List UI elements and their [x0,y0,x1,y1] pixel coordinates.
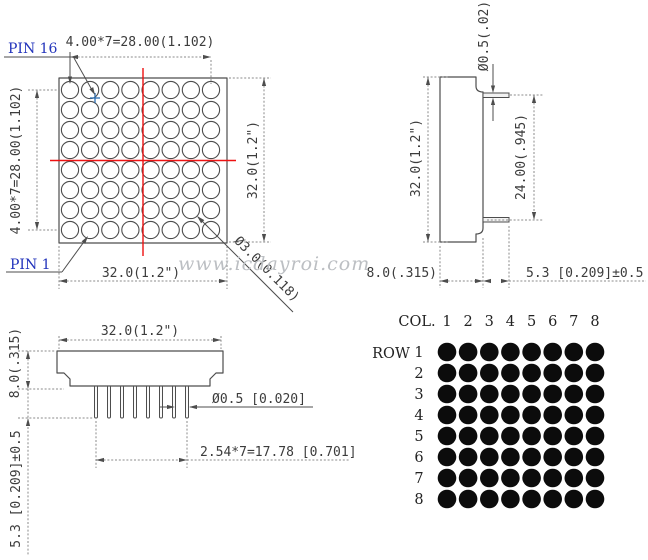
lead-pin [186,386,189,418]
dim-front-height: 32.0(1.2") [246,121,261,199]
led-dot-outline [102,221,119,238]
led-dot-outline [182,101,199,118]
matrix-dot [501,427,520,446]
led-dot-outline [142,221,159,238]
matrix-dot [438,406,457,425]
led-dot-outline [102,101,119,118]
dim-lead-pitch: 2.54*7=17.78 [0.701] [200,445,357,460]
matrix-dot [438,469,457,488]
led-dot-outline [61,201,78,218]
led-dot-outline [122,201,139,218]
dim-row-pitch: 4.00*7=28.00(1.102) [9,86,24,235]
led-dot-outline [142,81,159,98]
row-number: 7 [414,471,423,487]
matrix-dot [438,490,457,509]
led-dot-outline [202,181,219,198]
led-dot-outline [202,121,219,138]
led-dot-outline [82,101,99,118]
led-dot-outline [202,201,219,218]
row-header-label: ROW [372,346,410,362]
matrix-dot [459,490,478,509]
led-dot-outline [142,161,159,178]
matrix-dot [522,364,541,383]
col-number: 4 [506,314,515,330]
led-dot-outline [142,121,159,138]
led-dot-outline [82,181,99,198]
row-number-labels: 12345678 [414,345,423,508]
led-dot-outline [102,141,119,158]
bottom-body-outline [57,351,223,386]
led-dot-outline [162,121,179,138]
led-dot-outline [182,81,199,98]
matrix-dot [586,427,605,446]
bottom-lead-pins [95,386,189,418]
dim-bottom-width: 32.0(1.2") [101,324,179,339]
col-header-label: COL. [398,314,435,330]
matrix-dot [501,448,520,467]
dim-col-pitch: 4.00*7=28.00(1.102) [66,35,215,50]
matrix-dot [480,490,499,509]
matrix-dot [586,406,605,425]
matrix-dot [543,385,562,404]
dim-lead-thickness: Ø0.5(.02) [477,1,492,71]
matrix-dot [501,490,520,509]
matrix-dot [522,385,541,404]
matrix-dot [522,427,541,446]
led-dot-outline [162,81,179,98]
matrix-dot [501,364,520,383]
row-number: 1 [414,345,423,361]
matrix-dot [459,343,478,362]
matrix-diagram: COL. ROW 12345678 12345678 [372,314,604,508]
lead-pin [95,386,98,418]
led-dot-outline [162,101,179,118]
led-dot-outline [202,141,219,158]
led-dot-outline [61,141,78,158]
matrix-dot [501,406,520,425]
matrix-dot [565,469,584,488]
matrix-dot [522,469,541,488]
led-matrix-datasheet-drawing: PIN 16 PIN 1 4.00*7=28.00(1.102) 4.00*7=… [0,0,648,560]
matrix-dot [543,490,562,509]
pin16-label: PIN 16 [8,41,58,57]
led-dot-outline [142,201,159,218]
led-dot-outline [61,121,78,138]
matrix-dot [565,406,584,425]
matrix-dot [438,343,457,362]
col-number: 5 [527,314,536,330]
matrix-dot [565,490,584,509]
matrix-dot [565,448,584,467]
led-dot-outline [61,101,78,118]
led-dot-outline [202,161,219,178]
dim-bottom-lead-diameter: Ø0.5 [0.020] [212,392,306,407]
led-dot-outline [102,181,119,198]
matrix-dot [586,364,605,383]
led-dot-outline [102,121,119,138]
lead-pin [173,386,176,418]
matrix-dot [543,343,562,362]
matrix-dot [480,343,499,362]
led-dot-outline [61,221,78,238]
matrix-dot [522,343,541,362]
led-dot-outline [82,141,99,158]
matrix-dot [586,469,605,488]
matrix-dot [480,448,499,467]
led-dot-outline [162,221,179,238]
matrix-dot [459,469,478,488]
lead-pin [160,386,163,418]
matrix-dot [480,427,499,446]
row-number: 3 [414,387,423,403]
dim-front-width: 32.0(1.2") [102,266,180,281]
matrix-dot [501,469,520,488]
matrix-dot [543,469,562,488]
led-dot-outline [82,81,99,98]
row-number: 2 [414,366,423,382]
led-dot-outline [61,161,78,178]
side-body-outline [440,77,483,242]
dim-side-depth: 8.0(.315) [367,266,437,281]
matrix-dot [565,385,584,404]
lead-pin [108,386,111,418]
matrix-dot [586,448,605,467]
matrix-dot [459,406,478,425]
pin1-label: PIN 1 [10,257,51,273]
led-dot-outline [82,161,99,178]
col-number: 2 [463,314,472,330]
matrix-dot [565,364,584,383]
col-number: 7 [569,314,578,330]
matrix-dot [543,364,562,383]
led-dot-outline [162,141,179,158]
matrix-dot [586,385,605,404]
col-number: 1 [442,314,451,330]
side-dimension-lines [423,77,646,288]
matrix-dot [438,385,457,404]
led-dot-outline [102,81,119,98]
matrix-dot [459,364,478,383]
led-dot-outline [142,181,159,198]
dim-side-height: 32.0(1.2") [409,119,424,197]
matrix-dot [438,427,457,446]
led-dot-outline [82,201,99,218]
matrix-dot [522,448,541,467]
led-dot-outline [202,101,219,118]
led-dot-outline [182,121,199,138]
led-dot-outline [61,181,78,198]
matrix-dot [438,448,457,467]
matrix-dot [459,427,478,446]
row-number: 5 [414,429,423,445]
led-dot-outline [122,181,139,198]
led-dot-outline [82,221,99,238]
front-dimension-arrows [35,55,266,283]
lead-pin [147,386,150,418]
led-dot-outline [182,161,199,178]
watermark-text: www.icdayroi.com [178,253,370,275]
led-dot-outline [122,101,139,118]
matrix-dot [565,427,584,446]
row-number: 8 [414,492,423,508]
matrix-dot [565,343,584,362]
matrix-dot [480,406,499,425]
lead-pin [121,386,124,418]
col-number: 6 [548,314,557,330]
matrix-dot [480,469,499,488]
led-dot-outline [142,101,159,118]
led-dot-outline [122,121,139,138]
matrix-dot [501,343,520,362]
led-dot-outline [182,141,199,158]
matrix-dot [543,406,562,425]
led-dot-outline [182,181,199,198]
led-dot-outline [162,181,179,198]
led-dot-outline [122,221,139,238]
matrix-dot [438,364,457,383]
row-number: 6 [414,450,423,466]
matrix-dot [501,385,520,404]
row-number: 4 [414,408,423,424]
mechanical-drawing-canvas: PIN 16 PIN 1 4.00*7=28.00(1.102) 4.00*7=… [0,0,648,560]
side-top-lead [483,93,509,98]
matrix-dot [480,385,499,404]
matrix-dot [543,427,562,446]
led-dot-outline [82,121,99,138]
matrix-dot [459,448,478,467]
dim-bottom-lead-length: 5.3 [0.209]±0.5 [9,430,24,547]
led-dot-outline [142,141,159,158]
matrix-dot [522,406,541,425]
led-dot-outline [162,161,179,178]
led-dot-outline [122,161,139,178]
col-number: 8 [590,314,599,330]
led-dot-outline [102,201,119,218]
matrix-dot [586,490,605,509]
dim-lead-protrusion: 5.3 [0.209]±0.5 [526,266,643,281]
led-dot-outline [122,81,139,98]
dim-bottom-depth: 8.0(.315) [8,328,23,398]
matrix-dot [586,343,605,362]
bottom-view: 32.0(1.2") 8.0(.315) 5.3 [0.209]±0.5 Ø0.… [8,324,357,556]
col-number: 3 [485,314,494,330]
matrix-dot [459,385,478,404]
led-dot-outline [122,141,139,158]
matrix-dot [543,448,562,467]
matrix-dot [480,364,499,383]
col-number-labels: 12345678 [442,314,599,330]
side-view: 32.0(1.2") Ø0.5(.02) 24.00(.945) 8.0(.31… [367,1,646,288]
lead-pin [134,386,137,418]
led-dot-outline [162,201,179,218]
led-dot-outline [102,161,119,178]
led-dot-outline [182,201,199,218]
dim-lead-span: 24.00(.945) [514,114,529,200]
matrix-dot [522,490,541,509]
matrix-dot-grid [438,343,605,509]
led-dot-outline [182,221,199,238]
